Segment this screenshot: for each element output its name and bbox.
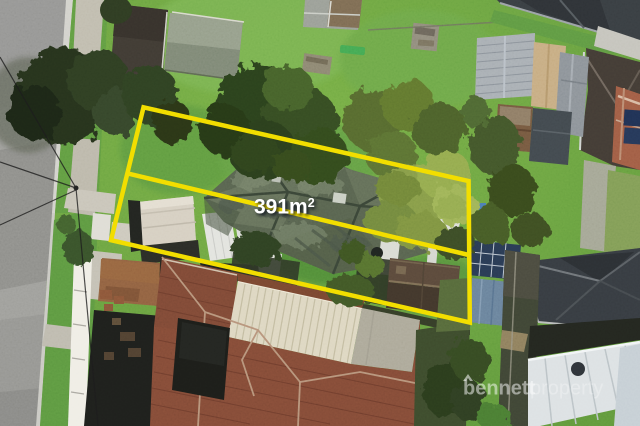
svg-text:bennett: bennett xyxy=(463,378,536,400)
svg-text:property: property xyxy=(530,378,603,400)
svg-text:391m2: 391m2 xyxy=(254,196,315,219)
